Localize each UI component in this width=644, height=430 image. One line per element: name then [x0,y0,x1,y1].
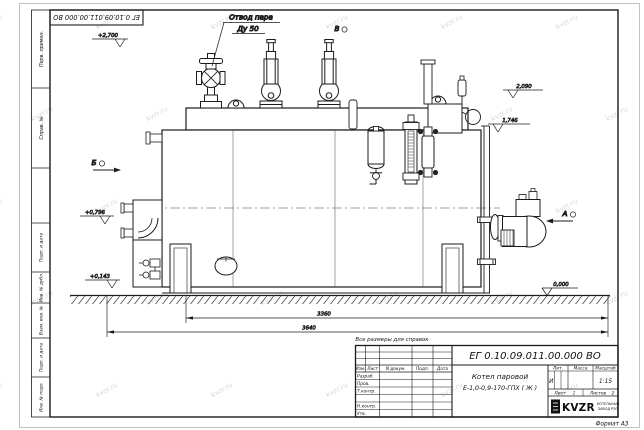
support-foot-left [170,244,191,293]
sheets-value: 2 [612,390,615,396]
elevation-0796: +0,796 [80,210,114,224]
dimension-value: 3360 [317,312,331,318]
top-stamp-designation: ЕГ 0.10.09.011.00.000 ВО [53,13,140,21]
sheet-label: Лист [554,390,566,396]
org-line1: КОТЕЛЬНЫЙ [597,401,620,406]
org-line2: ЗАВОД РЭП [598,407,619,411]
view-label-a: А [562,209,568,218]
margin-label-vzam-inv: Взам. инв. № [39,305,45,335]
cooling-fins [501,230,514,246]
dimension-3360: 3360 [186,312,608,320]
margin-label-podp-data-2: Подп. и дата [39,343,45,373]
lit-value: И [549,379,554,385]
side-stub [150,134,162,142]
support-foot-right [442,244,463,293]
elevation-1746: 1,746 [488,118,530,132]
safety-valve-1 [260,40,282,109]
burner-gearbox [516,200,540,217]
elevation-value: +2,700 [98,33,119,39]
sheet-value: 1 [573,390,576,396]
row-ncontrol: Н.контр. [357,404,376,410]
elevation-value: +0,143 [90,274,111,280]
margin-label-inv-dubl: Инв. № дубл. [39,273,45,302]
front-plate-stub [349,100,357,129]
elevation-0000: 0,000 [542,282,578,296]
row-tcontrol: Т.контр. [357,389,376,395]
vent-pipe [424,64,432,104]
drawing-sheet: kvzr.rukvzr.rukvzr.rukvzr.rukvzr.rukvzr.… [0,0,644,430]
lit-header: Лит. [552,366,563,372]
lifting-lug [228,100,244,108]
sheets-label: Листов [589,390,607,396]
burner-box [121,132,162,287]
designation: ЕГ 0.10.09.011.00.000 ВО [469,351,601,362]
mass-header: Масса [574,366,588,372]
steam-outlet-valve [197,54,226,109]
manhole [215,257,237,276]
elevation-2090: 2,090 [503,84,543,98]
safety-valve-2 [318,40,340,109]
dimension-3640: 3640 [107,326,608,334]
row-approver: Утв. [357,411,366,417]
scale-header: Масштаб [595,366,616,372]
boiler-body [152,108,500,293]
row-checker: Пров. [357,381,370,387]
elevation-value: 0,000 [553,282,569,288]
reference-note: Все размеры для справок [355,337,429,343]
product-name-line1: Котел паровой [472,372,529,381]
col-date: Дата [436,366,448,372]
boiler-assembly-drawing: Перв. примен. Справ. № Подп. и дата Инв.… [0,0,644,430]
row-developer: Разраб. [357,374,374,380]
elevation-value: 2,090 [516,84,532,90]
callout-text-line1: Отвод пара [229,13,273,22]
elevation-2700: +2,700 [92,33,128,47]
burner-unit [491,189,547,248]
view-label-b: Б [92,158,97,167]
sensor [458,80,466,96]
dimension-value: 3640 [302,326,316,332]
format-note: Формат А3 [595,422,628,428]
margin-label-podp-data-1: Подп. и дата [39,233,45,263]
col-sign: Подп. [416,366,429,372]
elevation-value: +0,796 [85,210,106,216]
col-list: Лист [366,366,378,372]
margin-label-perv-primen: Перв. примен. [39,31,45,67]
product-name-line2: Е-1,0-0,9-170-ГПХ ( Ж ) [463,385,537,392]
col-doc: N докум. [386,366,406,372]
ground [70,296,610,305]
logo-name: KVZR [562,402,595,414]
scale-value: 1:15 [599,379,612,385]
elevation-value: 1,746 [502,118,518,124]
view-label-v: В [335,24,340,33]
margin-label-sprav-no: Справ. № [39,116,45,139]
elevation-0143: +0,143 [85,274,120,288]
manufacturer-logo: KVZR КОТЕЛЬНЫЙ ЗАВОД РЭП [551,400,620,415]
rear-top-equipment [421,60,481,133]
control-box [428,104,462,133]
col-izm: Изм. [355,366,365,372]
margin-label-inv-podl: Инв. № подл. [39,382,45,412]
callout-text-line2: Ду 50 [236,24,259,33]
